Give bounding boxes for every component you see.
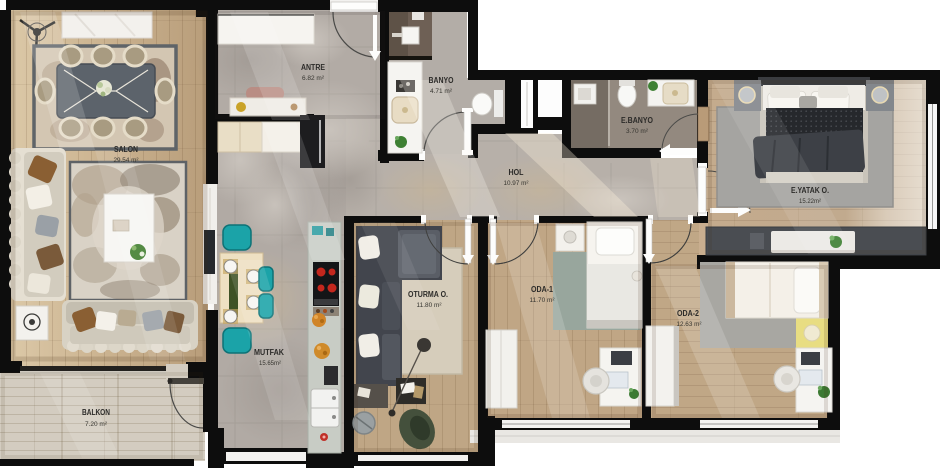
svg-text:BALKON: BALKON [82, 407, 110, 417]
svg-text:HOL: HOL [509, 167, 524, 177]
svg-text:11.80 m²: 11.80 m² [417, 302, 442, 309]
svg-text:6.82 m²: 6.82 m² [302, 75, 324, 82]
svg-text:ODA-2: ODA-2 [677, 308, 699, 318]
svg-text:4.71 m²: 4.71 m² [430, 88, 452, 95]
svg-text:OTURMA O.: OTURMA O. [408, 289, 448, 299]
svg-text:10.97 m²: 10.97 m² [504, 180, 529, 187]
svg-text:7.20 m²: 7.20 m² [85, 421, 107, 428]
svg-text:ODA-1: ODA-1 [531, 284, 553, 294]
svg-text:3.70 m²: 3.70 m² [626, 128, 648, 135]
svg-text:11.70 m²: 11.70 m² [530, 297, 555, 304]
svg-text:E.YATAK O.: E.YATAK O. [791, 185, 829, 195]
svg-text:12.63 m²: 12.63 m² [677, 321, 702, 328]
svg-text:E.BANYO: E.BANYO [621, 115, 653, 125]
svg-text:BANYO: BANYO [429, 75, 454, 85]
svg-text:ANTRE: ANTRE [301, 62, 325, 72]
svg-text:15.22m²: 15.22m² [799, 198, 821, 205]
svg-text:15.65m²: 15.65m² [259, 360, 281, 367]
svg-text:SALON: SALON [114, 144, 138, 154]
svg-text:29.54 m²: 29.54 m² [114, 157, 139, 164]
svg-text:MUTFAK: MUTFAK [254, 347, 285, 357]
